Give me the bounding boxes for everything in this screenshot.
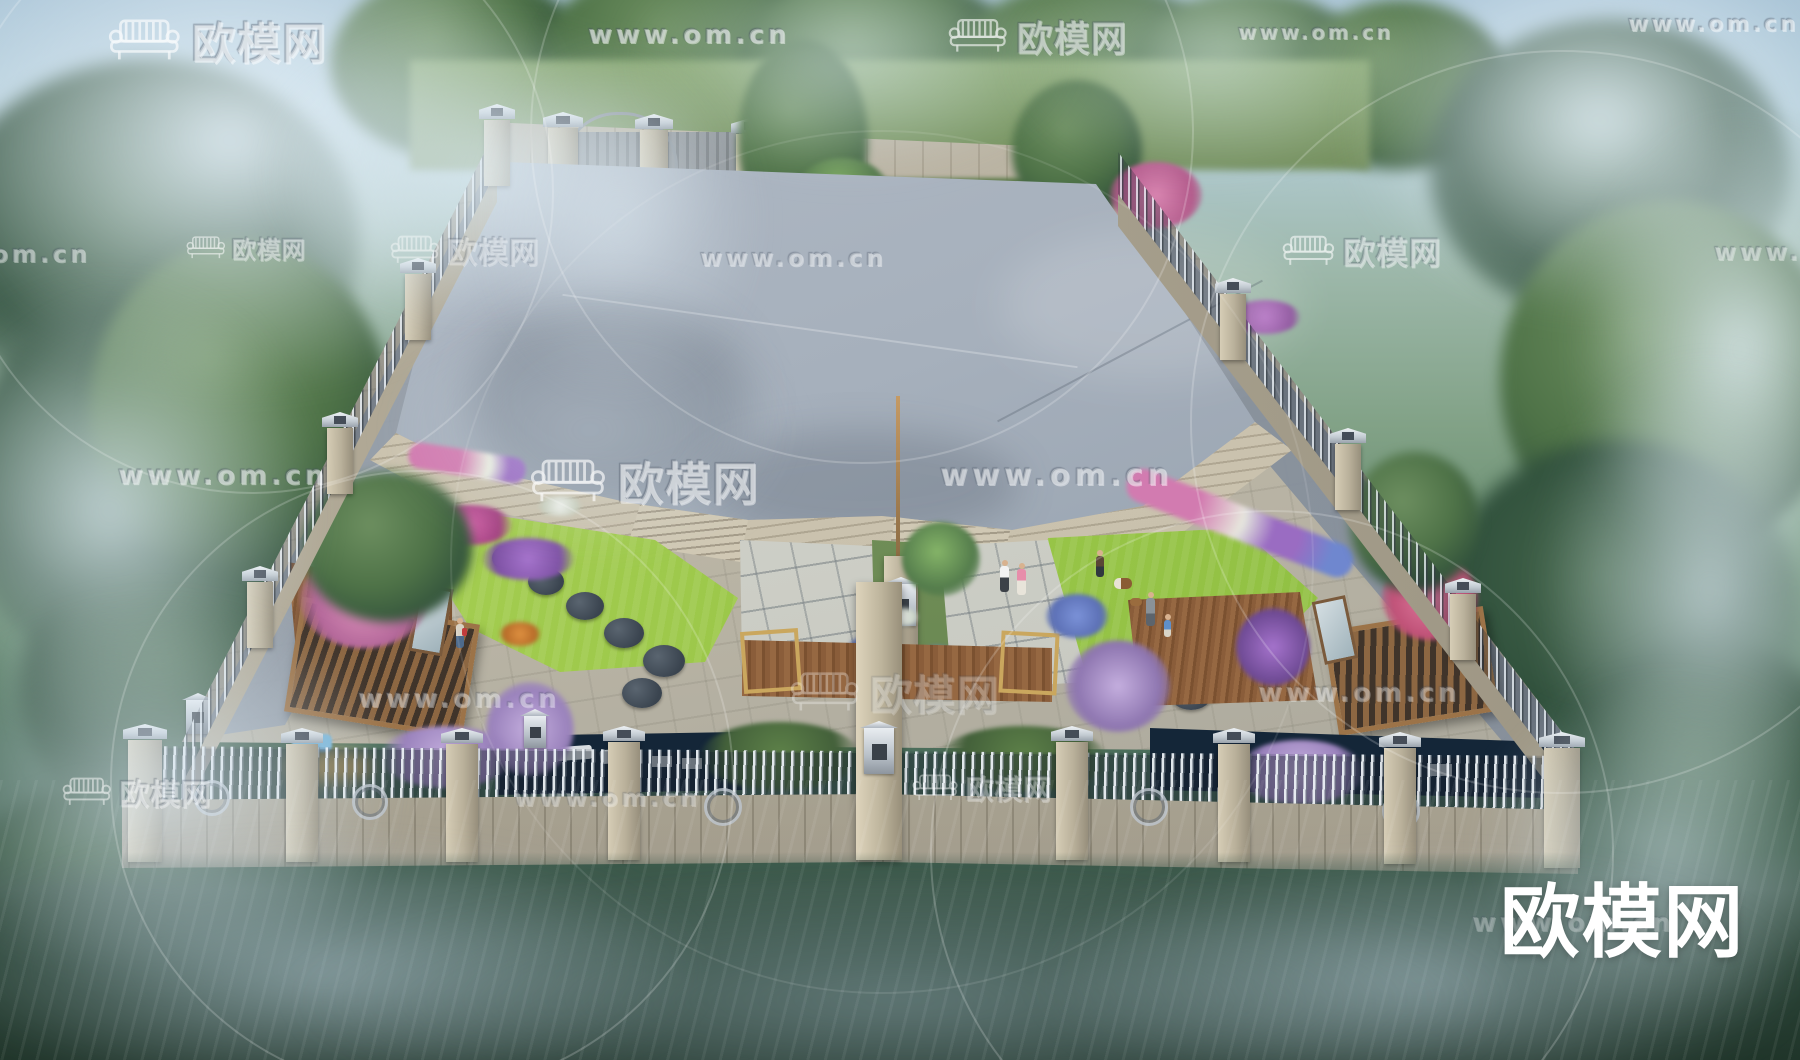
watermark-brand-text: 欧模网 (965, 768, 1052, 808)
aerial-garden-render: 欧模网 欧模网 欧模网 欧模网 欧模网 欧模网 欧模网 欧模网 欧模网 www.… (0, 0, 1800, 1060)
watermark-brand-text: 欧模网 (1343, 228, 1442, 274)
watermark-brand-text: 欧模网 (870, 662, 1000, 723)
watermark-url: www.om.cn (1238, 20, 1393, 44)
sofa-watermark-icon (912, 773, 958, 802)
watermark-url: www.om.cn (358, 684, 560, 714)
watermark-url-text: www.om.cn (0, 240, 90, 268)
watermark-url: www.om.cn (0, 240, 90, 268)
watermark-url-text: www.om.cn (1258, 678, 1460, 708)
watermark-url-text: www.om.cn (118, 460, 328, 491)
watermark-url: www.om.cn (1258, 678, 1460, 708)
watermark-brand-text: 欧模网 (192, 8, 328, 72)
watermark-brand: 欧模网 (186, 230, 306, 265)
watermark-url-text: www.om.cn (940, 458, 1173, 493)
sofa-watermark-icon (948, 17, 1007, 55)
watermark-url-text: www.om.cn (514, 784, 700, 812)
watermark-brand-text: 欧模网 (1016, 10, 1127, 62)
watermark-url-text: www.om.cn (1628, 12, 1799, 37)
watermark-url: www.om.cn (588, 20, 790, 50)
watermark-brand: 欧模网 (108, 8, 328, 72)
sofa-watermark-icon (186, 235, 226, 260)
watermark-url: www.om.cn (1628, 12, 1799, 37)
sofa-watermark-icon (62, 776, 112, 808)
watermark-brand: 欧模网 (1282, 228, 1442, 274)
watermark-url: www.om.cn (700, 244, 886, 272)
watermark-brand: 欧模网 (790, 662, 1000, 723)
watermark-url: www.om.cn (514, 784, 700, 812)
watermark-url-text: www.om.cn (358, 684, 560, 714)
watermark-brand-text: 欧模网 (119, 770, 212, 814)
watermark-brand: 欧模网 (62, 770, 212, 814)
sofa-watermark-icon (390, 234, 440, 266)
sofa-watermark-icon (108, 17, 181, 63)
watermark-url-text: www.om.cn (1714, 238, 1800, 266)
sofa-watermark-icon (790, 670, 859, 714)
watermark-logo-large: 欧模网 (1500, 858, 1745, 974)
watermark-brand: 欧模网 (390, 228, 540, 272)
watermark-url-text: www.om.cn (588, 20, 790, 50)
watermark-url-text: www.om.cn (1238, 20, 1393, 44)
watermark-url-text: www.om.cn (700, 244, 886, 272)
watermark-brand: 欧模网 (948, 10, 1128, 62)
watermark-brand-text: 欧模网 (232, 230, 306, 265)
sofa-watermark-icon (1282, 234, 1335, 268)
watermark-url: www.om.cn (118, 460, 328, 491)
sofa-watermark-icon (530, 457, 606, 505)
watermark-brand: 欧模网 (912, 768, 1052, 808)
watermark-url: www.om.cn (940, 458, 1173, 493)
watermark-url: www.om.cn (1714, 238, 1800, 266)
watermark-brand-text: 欧模网 (447, 228, 540, 272)
watermark-brand: 欧模网 (530, 448, 760, 514)
watermark-brand-text: 欧模网 (617, 448, 759, 514)
